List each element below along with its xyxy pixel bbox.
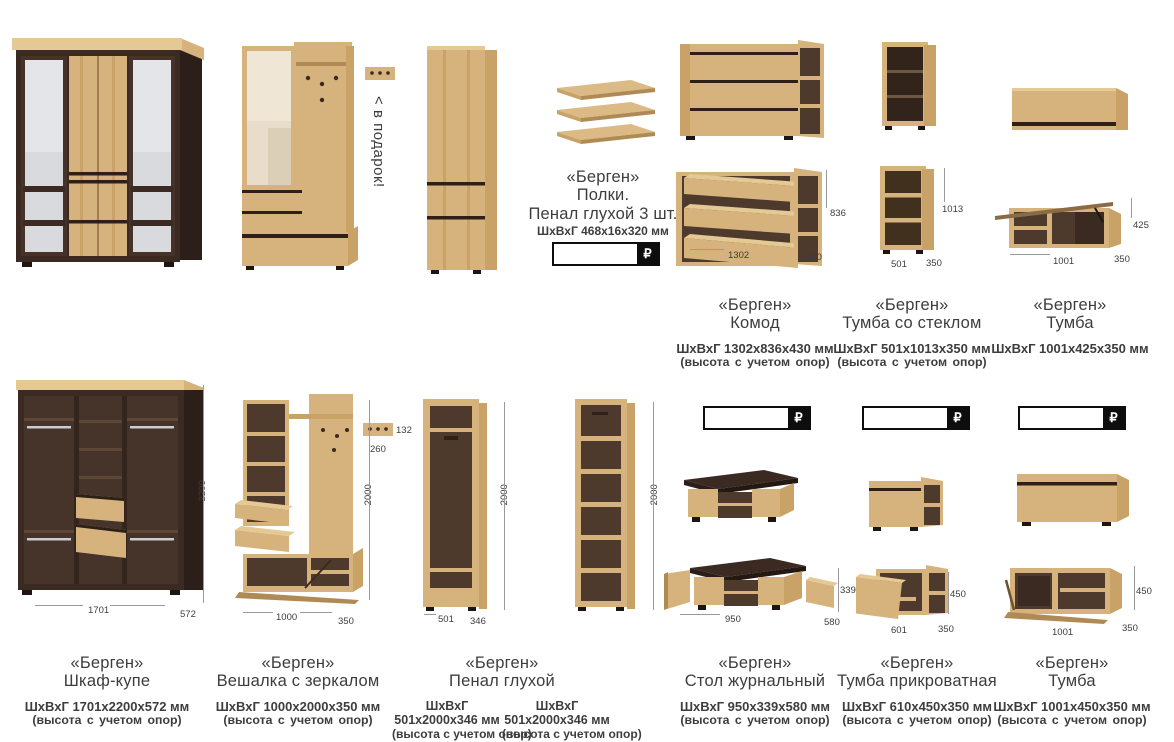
dims-note: (высота с учетом опор): [392, 728, 502, 742]
dim-width: 601: [891, 626, 907, 636]
product-brand: «Берген»: [503, 168, 703, 186]
figure-tumba-wall-open: [995, 194, 1131, 256]
figure-table-closed: [676, 462, 806, 532]
price-input-table[interactable]: ₽: [703, 406, 811, 430]
product-label-tumba-wall: «Берген» Тумба ШхВхГ 1001х425х350 мм: [970, 296, 1170, 356]
figure-table-open: [660, 550, 840, 622]
price-input-tumba-bed[interactable]: ₽: [862, 406, 970, 430]
dim-width: 501: [891, 260, 907, 270]
price-input-shelves[interactable]: ₽: [552, 242, 660, 266]
product-dims: ШхВхГ 468х16х320 мм: [503, 225, 703, 238]
product-brand: «Берген»: [196, 654, 400, 672]
product-brand: «Берген»: [970, 654, 1174, 672]
dim-height: 1013: [942, 205, 963, 215]
gift-note: < в подарок!: [370, 96, 387, 188]
product-note: (высота с учетом опор): [812, 356, 1012, 370]
dim-depth: 350: [938, 625, 954, 635]
product-note: (высота с учетом опор): [15, 714, 199, 728]
dim-depth: 572: [180, 610, 196, 620]
dim-width: 501: [438, 615, 454, 625]
product-dims: ШхВхГ 1001х425х350 мм: [970, 342, 1170, 357]
dim-keyholder-width: 260: [370, 445, 386, 455]
dim-width: 1302: [728, 251, 749, 261]
dim-width: 1001: [1053, 257, 1074, 267]
dim-height: 2000: [650, 484, 660, 505]
dim-keyholder-height: 132: [396, 426, 412, 436]
price-input-tumba-wide[interactable]: ₽: [1018, 406, 1126, 430]
figure-keyholder-gift: [364, 64, 396, 84]
dim-depth: 580: [824, 618, 840, 628]
product-dims: ШхВхГ 1000х2000х350 мм: [196, 700, 400, 715]
figure-tumba-wall-closed: [1010, 84, 1132, 138]
dim-width: 950: [725, 615, 741, 625]
dim-height: 450: [950, 590, 966, 600]
dim-height: 450: [1136, 587, 1152, 597]
figure-wardrobe-open: [14, 378, 210, 610]
penal-dims-col2: ШхВхГ 501х2000х346 мм (высота с учетом о…: [502, 699, 612, 742]
dim-depth: 350: [338, 617, 354, 627]
dim-width: 1701: [88, 606, 109, 616]
dim-depth: 350: [926, 259, 942, 269]
dim-height: 836: [830, 209, 846, 219]
product-label-penal: «Берген» Пенал глухой ШхВхГ 501х2000х346…: [392, 654, 612, 742]
product-name: Вешалка с зеркалом: [196, 672, 400, 690]
product-brand: «Берген»: [970, 296, 1170, 314]
product-name: Шкаф-купе: [15, 672, 199, 690]
dim-width: 1000: [276, 613, 297, 623]
product-brand: «Берген»: [15, 654, 199, 672]
product-name2: Пенал глухой 3 шт.: [503, 205, 703, 223]
figure-shelves: [543, 74, 663, 154]
figure-tumba-glass-open: [878, 164, 940, 258]
penal-dims-col1: ШхВхГ 501х2000х346 мм (высота с учетом о…: [392, 699, 502, 742]
figure-tumba-wide-open: [1004, 560, 1134, 628]
product-brand: «Берген»: [392, 654, 612, 672]
dims-label: ШхВхГ: [502, 699, 612, 713]
figure-penal-open-shelves: [572, 396, 638, 616]
product-dims: ШхВхГ 1001х450х350 мм: [970, 700, 1174, 715]
product-name: Пенал глухой: [392, 672, 612, 690]
ruble-icon: ₽: [1103, 408, 1124, 428]
product-name: Полки.: [503, 186, 703, 204]
gift-note-label: в подарок!: [370, 110, 387, 188]
dims-value: 501х2000х346 мм: [392, 713, 502, 727]
catalog-page: < в подарок!: [0, 0, 1174, 742]
figure-penal-closed: [423, 42, 501, 278]
product-name: Тумба: [970, 672, 1174, 690]
dim-width: 1001: [1052, 628, 1073, 638]
product-dims: ШхВхГ 1701х2200х572 мм: [15, 700, 199, 715]
figure-keyholder-dim: [362, 421, 394, 439]
figure-wardrobe-closed: [8, 24, 208, 276]
dims-value: 501х2000х346 мм: [502, 713, 612, 727]
figure-komod-closed: [676, 38, 828, 142]
dim-depth: 350: [1114, 255, 1130, 265]
dims-label: ШхВхГ: [392, 699, 502, 713]
dim-depth: 346: [470, 617, 486, 627]
product-label-wardrobe: «Берген» Шкаф-купе ШхВхГ 1701х2200х572 м…: [15, 654, 199, 728]
ruble-icon: ₽: [637, 244, 658, 264]
dims-note: (высота с учетом опор): [502, 728, 612, 742]
product-label-tumba-wide: «Берген» Тумба ШхВхГ 1001х450х350 мм (вы…: [970, 654, 1174, 728]
ruble-icon: ₽: [947, 408, 968, 428]
product-label-shelves: «Берген» Полки. Пенал глухой 3 шт. ШхВхГ…: [503, 168, 703, 239]
figure-tumba-bed-open: [856, 563, 956, 625]
product-note: (высота с учетом опор): [970, 714, 1174, 728]
figure-hanger-closed: [236, 38, 366, 274]
product-note: (высота с учетом опор): [196, 714, 400, 728]
dim-depth: 430: [806, 253, 822, 263]
figure-tumba-glass-closed: [880, 40, 942, 134]
dim-depth: 350: [1122, 624, 1138, 634]
figure-hanger-open: [235, 392, 370, 614]
product-label-hanger: «Берген» Вешалка с зеркалом ШхВхГ 1000х2…: [196, 654, 400, 728]
product-name: Тумба: [970, 314, 1170, 332]
chevron-left-icon: <: [370, 96, 387, 105]
figure-penal-open-rod: [420, 396, 490, 616]
dim-height: 339: [840, 586, 856, 596]
dim-height: 425: [1133, 221, 1149, 231]
figure-tumba-wide-closed: [1014, 468, 1134, 532]
figure-tumba-bed-closed: [866, 475, 948, 537]
ruble-icon: ₽: [788, 408, 809, 428]
